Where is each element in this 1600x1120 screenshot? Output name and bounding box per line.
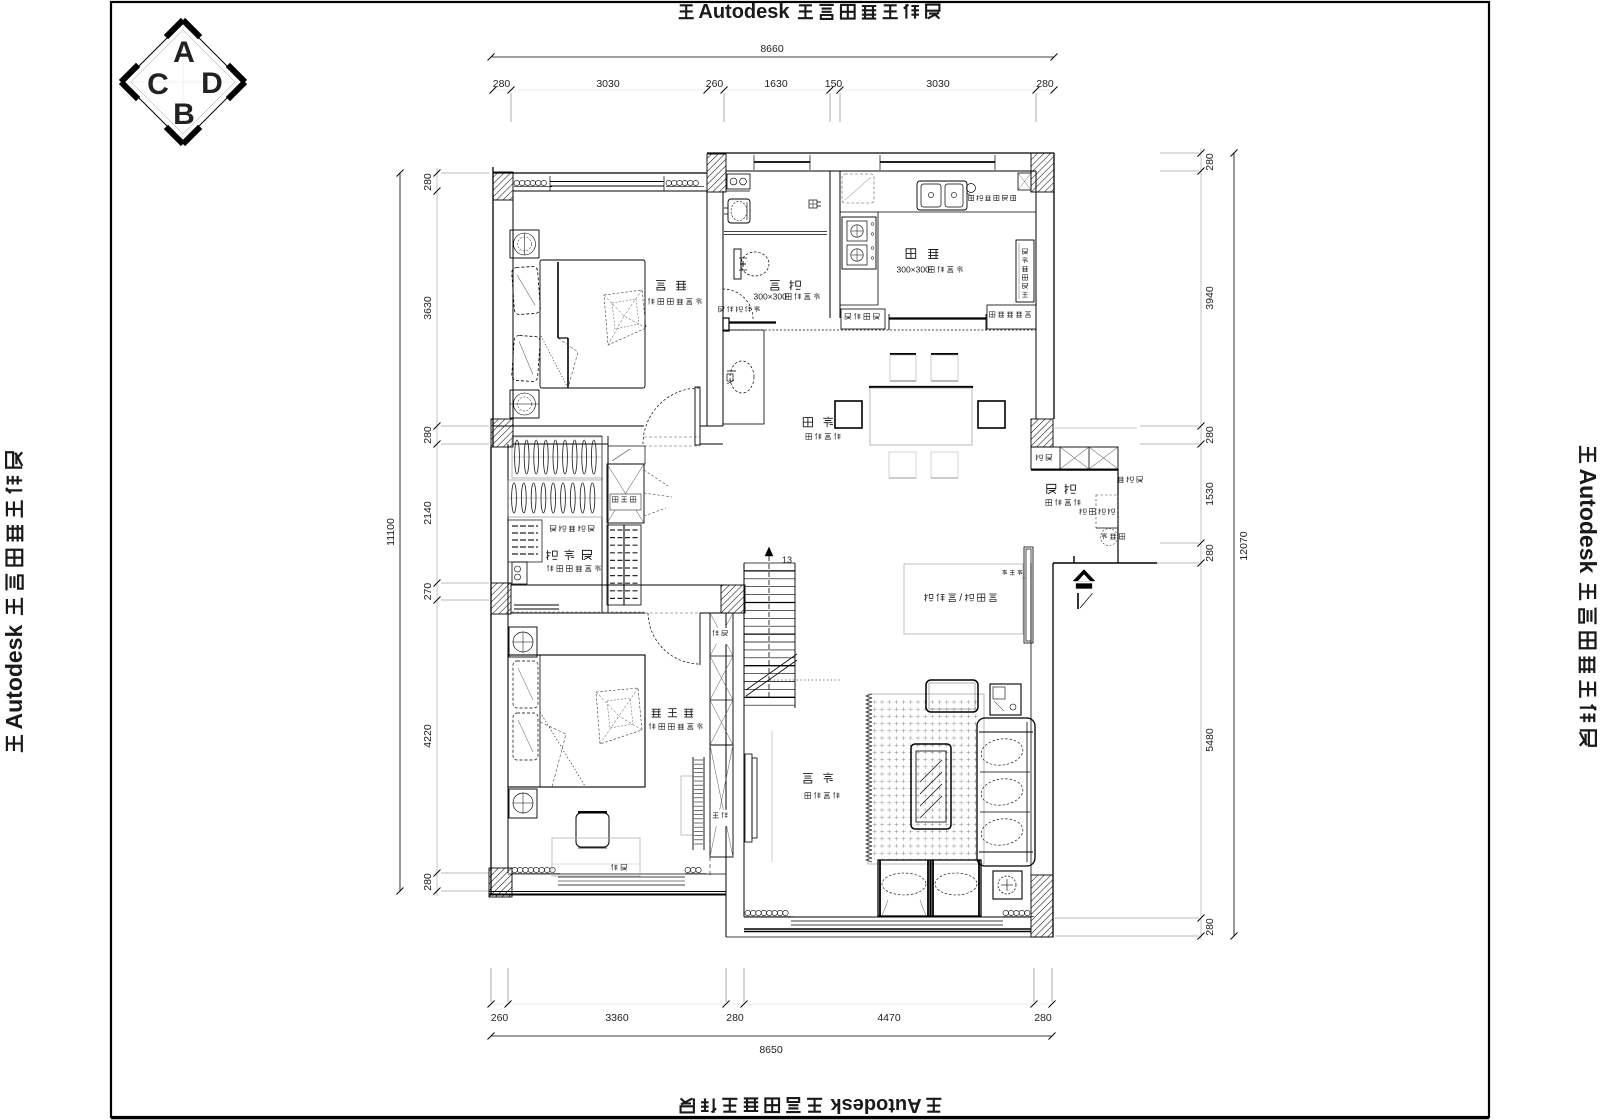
svg-text:300×300: 300×300	[897, 264, 931, 274]
svg-text:13: 13	[782, 555, 792, 565]
svg-text:C: C	[147, 68, 169, 101]
svg-text:300×300: 300×300	[754, 291, 788, 301]
svg-text:280: 280	[1204, 153, 1216, 171]
svg-text:/: /	[959, 592, 962, 604]
svg-text:Autodesk: Autodesk	[1, 625, 27, 730]
svg-text:11100: 11100	[385, 518, 397, 546]
svg-text:Autodesk: Autodesk	[1575, 469, 1600, 574]
svg-text:4470: 4470	[877, 1012, 901, 1024]
svg-text:280: 280	[422, 426, 434, 444]
svg-text:8660: 8660	[760, 43, 784, 55]
svg-text:Autodesk: Autodesk	[698, 1, 790, 23]
svg-text:5480: 5480	[1204, 728, 1216, 752]
svg-text:D: D	[201, 67, 223, 100]
svg-text:3030: 3030	[596, 78, 620, 90]
svg-text:150: 150	[825, 78, 843, 90]
svg-text:280: 280	[422, 873, 434, 891]
svg-text:270: 270	[422, 583, 434, 601]
svg-text:260: 260	[491, 1012, 509, 1024]
svg-text:12070: 12070	[1238, 531, 1250, 560]
svg-text:3030: 3030	[926, 78, 950, 90]
svg-text:1530: 1530	[1204, 482, 1216, 506]
svg-text:3630: 3630	[422, 296, 434, 320]
svg-text:280: 280	[1204, 544, 1216, 562]
svg-text:280: 280	[493, 78, 511, 90]
svg-text:B: B	[173, 98, 195, 131]
svg-text:280: 280	[1036, 78, 1054, 90]
svg-text:2140: 2140	[422, 501, 434, 525]
svg-text:280: 280	[1204, 918, 1216, 936]
svg-text:3360: 3360	[605, 1012, 629, 1024]
svg-text:3940: 3940	[1204, 286, 1216, 310]
svg-text:4220: 4220	[422, 724, 434, 748]
svg-text:8650: 8650	[759, 1044, 783, 1056]
svg-text:280: 280	[422, 173, 434, 191]
svg-text:280: 280	[1034, 1012, 1052, 1024]
svg-text:A: A	[173, 36, 195, 69]
svg-text:Autodesk: Autodesk	[830, 1094, 922, 1116]
svg-text:260: 260	[706, 78, 724, 90]
svg-text:1630: 1630	[764, 78, 788, 90]
svg-text:280: 280	[1204, 426, 1216, 444]
svg-text:280: 280	[726, 1012, 744, 1024]
